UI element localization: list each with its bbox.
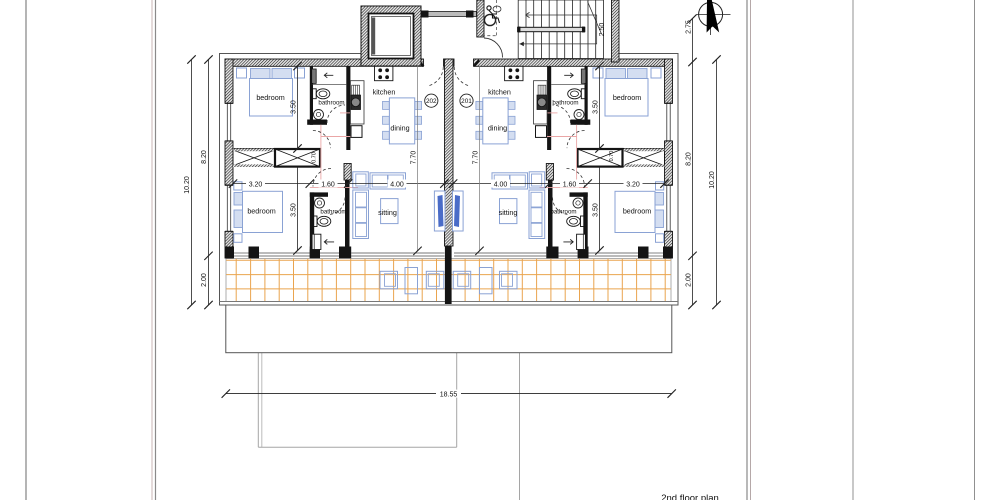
svg-text:bathroom: bathroom bbox=[320, 209, 346, 216]
svg-text:0.70: 0.70 bbox=[609, 151, 615, 162]
svg-text:bathroom: bathroom bbox=[318, 99, 344, 106]
svg-text:10.20: 10.20 bbox=[709, 171, 716, 189]
svg-text:bathroom: bathroom bbox=[550, 209, 576, 216]
svg-text:2.75: 2.75 bbox=[686, 20, 693, 34]
svg-text:3.50: 3.50 bbox=[291, 100, 298, 114]
svg-text:4.00: 4.00 bbox=[494, 181, 508, 188]
svg-text:8.20: 8.20 bbox=[201, 150, 208, 164]
svg-text:sitting: sitting bbox=[499, 208, 518, 217]
svg-text:1.60: 1.60 bbox=[563, 181, 577, 188]
svg-text:2.50: 2.50 bbox=[599, 23, 606, 37]
svg-text:3.50: 3.50 bbox=[291, 203, 298, 217]
svg-text:bedroom: bedroom bbox=[623, 206, 651, 215]
svg-text:dining: dining bbox=[390, 123, 409, 132]
svg-text:7.70: 7.70 bbox=[411, 151, 418, 165]
svg-text:bathroom: bathroom bbox=[552, 99, 578, 106]
svg-text:3.50: 3.50 bbox=[593, 203, 600, 217]
svg-text:0.70: 0.70 bbox=[312, 152, 318, 163]
svg-text:3.20: 3.20 bbox=[249, 181, 263, 188]
svg-text:8.20: 8.20 bbox=[686, 152, 693, 166]
svg-text:sitting: sitting bbox=[378, 208, 397, 217]
svg-text:1.60: 1.60 bbox=[321, 181, 335, 188]
svg-text:2nd floor plan: 2nd floor plan bbox=[661, 493, 719, 500]
svg-text:bedroom: bedroom bbox=[256, 93, 284, 102]
svg-text:kitchen: kitchen bbox=[488, 88, 511, 97]
svg-text:2.00: 2.00 bbox=[686, 273, 693, 287]
svg-text:4.00: 4.00 bbox=[390, 181, 404, 188]
svg-text:3.50: 3.50 bbox=[593, 100, 600, 114]
svg-text:7.70: 7.70 bbox=[473, 151, 480, 165]
svg-text:202: 202 bbox=[426, 98, 437, 105]
svg-text:3.20: 3.20 bbox=[626, 181, 640, 188]
svg-text:18.55: 18.55 bbox=[440, 391, 458, 398]
svg-text:bedroom: bedroom bbox=[613, 93, 641, 102]
svg-text:10.20: 10.20 bbox=[184, 176, 191, 194]
svg-text:kitchen: kitchen bbox=[373, 88, 396, 97]
svg-text:201: 201 bbox=[461, 98, 472, 105]
svg-text:dining: dining bbox=[488, 123, 507, 132]
svg-text:bedroom: bedroom bbox=[247, 206, 275, 215]
svg-text:2.00: 2.00 bbox=[201, 273, 208, 287]
